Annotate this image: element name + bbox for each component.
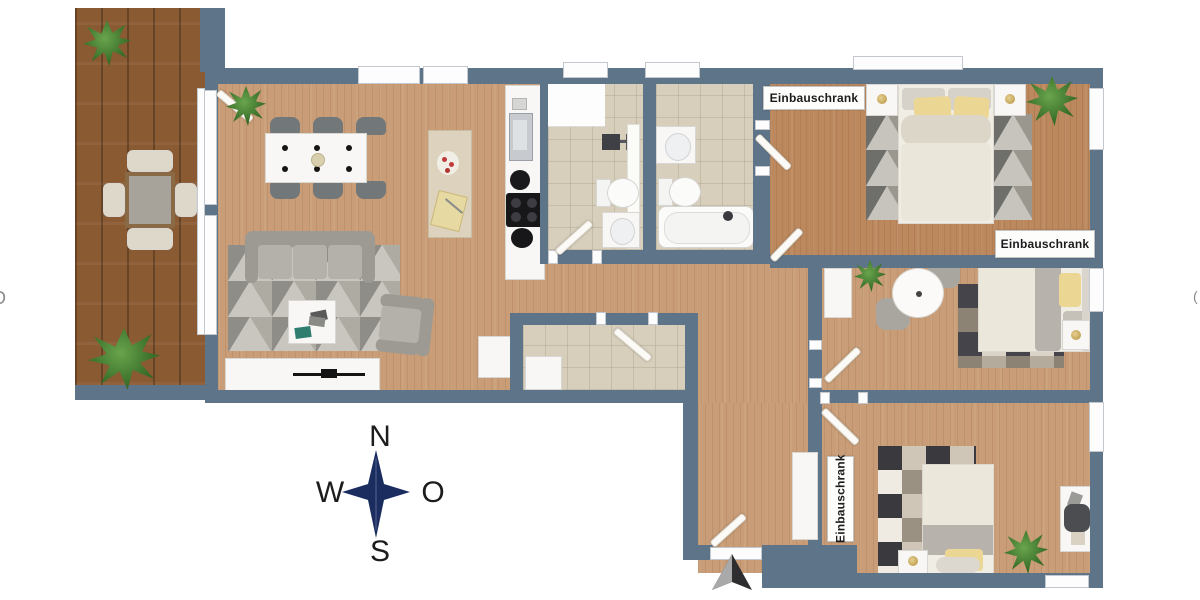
wall xyxy=(808,390,1103,403)
door-threshold xyxy=(596,312,606,325)
storage-cabinet xyxy=(525,356,562,390)
wall xyxy=(510,313,523,390)
balcony-chair xyxy=(127,228,173,250)
stove xyxy=(506,193,543,227)
tv-bench xyxy=(225,358,380,392)
pot xyxy=(510,170,530,190)
wall xyxy=(205,390,698,403)
door-threshold xyxy=(809,340,822,350)
washbasin xyxy=(656,126,696,164)
compass-west: W xyxy=(316,476,345,509)
window xyxy=(358,66,420,84)
window xyxy=(423,66,468,84)
dining-table xyxy=(265,133,367,183)
wardrobe-label-text: Einbauschrank xyxy=(835,455,847,544)
pillow xyxy=(1059,273,1081,307)
wardrobe-label-text: Einbauschrank xyxy=(770,92,859,104)
desk-chair xyxy=(1064,504,1090,532)
sofa xyxy=(245,231,375,283)
wall xyxy=(540,84,548,250)
wall xyxy=(685,313,698,403)
wall xyxy=(75,385,212,400)
window xyxy=(1089,88,1104,150)
door-threshold xyxy=(858,392,868,404)
lamp xyxy=(908,556,918,566)
double-bed xyxy=(898,84,994,224)
kitchen-counter xyxy=(505,85,545,280)
balcony-door-window xyxy=(204,90,217,205)
shower xyxy=(548,84,605,127)
wardrobe-label: Einbauschrank xyxy=(763,86,865,110)
entrance-arrow-icon xyxy=(706,552,754,592)
wall xyxy=(762,545,857,588)
door-threshold xyxy=(809,378,822,388)
door-threshold xyxy=(648,312,658,325)
window xyxy=(197,88,205,335)
balcony-table xyxy=(125,172,175,228)
window xyxy=(853,56,963,70)
wardrobe-label: Einbauschrank xyxy=(827,456,854,542)
balcony-chair xyxy=(103,183,125,217)
balcony-door-window xyxy=(204,215,217,335)
washbasin xyxy=(602,212,640,248)
round-table xyxy=(892,268,944,318)
window xyxy=(563,62,608,78)
toilet xyxy=(596,178,638,206)
window xyxy=(1089,402,1104,452)
floor-plan: Einbauschrank Einbauschrank Einbauschran… xyxy=(0,0,1200,600)
coffee-table xyxy=(288,300,336,344)
toilet xyxy=(658,176,700,206)
built-in-wardrobe xyxy=(792,452,818,540)
wall xyxy=(683,403,698,560)
window xyxy=(645,62,700,78)
balcony-chair xyxy=(127,150,173,172)
dining-chair xyxy=(313,181,343,199)
wall xyxy=(540,250,770,264)
single-bed xyxy=(922,464,994,576)
door-threshold xyxy=(592,250,602,264)
bathtub xyxy=(658,206,754,248)
compass-south: S xyxy=(370,535,390,568)
dining-chair xyxy=(270,181,300,199)
window xyxy=(1045,575,1089,588)
side-shelf xyxy=(478,336,512,378)
sideboard xyxy=(824,268,852,318)
wall xyxy=(643,84,656,250)
compass-rose: N W O S xyxy=(300,418,460,568)
compass-north: N xyxy=(369,420,391,453)
lamp xyxy=(1071,330,1081,340)
wardrobe-label-text: Einbauschrank xyxy=(1001,238,1090,250)
wall xyxy=(200,8,225,72)
balcony-chair xyxy=(175,183,197,217)
kitchen-sink xyxy=(509,113,533,161)
armchair xyxy=(375,293,435,356)
dining-chair xyxy=(356,181,386,199)
wardrobe-label: Einbauschrank xyxy=(995,230,1095,258)
door-threshold xyxy=(820,392,830,404)
lamp xyxy=(1005,94,1015,104)
door-threshold xyxy=(755,120,770,130)
right-edge-glyph: ( xyxy=(1193,288,1198,304)
lamp xyxy=(877,94,887,104)
compass-east: O xyxy=(421,476,444,509)
left-edge-glyph: D xyxy=(0,288,6,309)
kitchen-island xyxy=(428,130,472,238)
bowl xyxy=(511,228,533,248)
door-threshold xyxy=(755,166,770,176)
window xyxy=(1089,268,1104,312)
